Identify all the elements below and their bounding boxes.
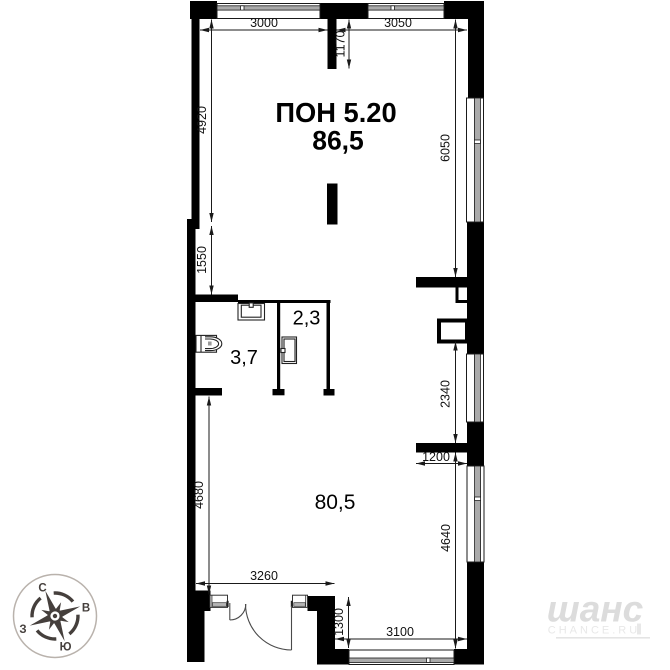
svg-text:6050: 6050	[439, 134, 453, 162]
svg-text:2,3: 2,3	[293, 308, 321, 330]
svg-text:4640: 4640	[439, 524, 453, 552]
svg-text:3000: 3000	[250, 16, 278, 30]
svg-text:3050: 3050	[384, 16, 412, 30]
svg-text:1200: 1200	[422, 450, 450, 464]
svg-text:1170: 1170	[334, 31, 348, 58]
svg-text:86,5: 86,5	[312, 126, 364, 156]
svg-text:4920: 4920	[195, 106, 209, 134]
svg-text:3,7: 3,7	[230, 347, 258, 369]
svg-text:1550: 1550	[195, 246, 209, 274]
svg-text:3100: 3100	[386, 625, 414, 639]
svg-text:С: С	[38, 583, 46, 595]
svg-text:80,5: 80,5	[315, 491, 356, 514]
svg-text:1300: 1300	[332, 608, 346, 636]
svg-text:Ю: Ю	[60, 642, 72, 654]
svg-text:2340: 2340	[439, 380, 453, 408]
svg-text:З: З	[19, 624, 26, 636]
svg-text:ПОН 5.20: ПОН 5.20	[275, 97, 396, 128]
svg-text:В: В	[82, 603, 90, 615]
svg-text:CHANCE.RU: CHANCE.RU	[548, 625, 640, 637]
svg-text:шанс: шанс	[547, 589, 644, 630]
svg-text:4680: 4680	[192, 481, 206, 509]
svg-text:3260: 3260	[250, 569, 278, 583]
